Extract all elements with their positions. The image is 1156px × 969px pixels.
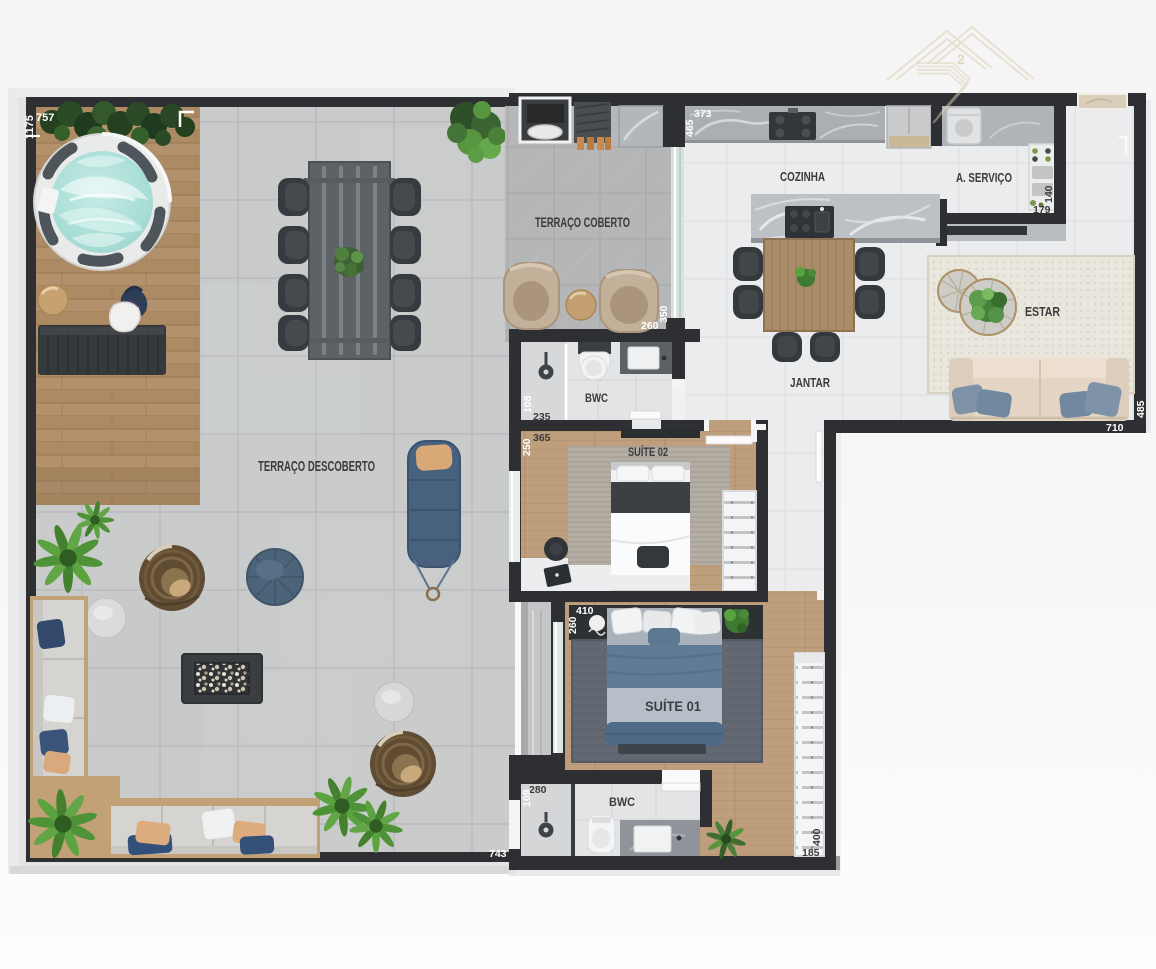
svg-text:TERRAÇO DESCOBERTO: TERRAÇO DESCOBERTO — [258, 458, 375, 475]
svg-text:260: 260 — [567, 616, 579, 634]
svg-text:485: 485 — [1135, 400, 1147, 418]
svg-text:SUÍTE 02: SUÍTE 02 — [628, 444, 668, 459]
svg-text:743: 743 — [489, 848, 507, 860]
svg-text:BWC: BWC — [609, 797, 635, 809]
svg-text:TERRAÇO COBERTO: TERRAÇO COBERTO — [535, 215, 630, 230]
svg-text:260: 260 — [641, 320, 659, 332]
svg-text:BWC: BWC — [585, 393, 608, 405]
svg-text:350: 350 — [658, 305, 670, 323]
svg-text:757: 757 — [36, 112, 54, 124]
svg-text:140: 140 — [1043, 185, 1055, 203]
svg-text:COZINHA: COZINHA — [780, 169, 825, 184]
svg-text:185: 185 — [802, 847, 820, 859]
svg-text:465: 465 — [684, 119, 696, 137]
svg-text:410: 410 — [576, 605, 594, 617]
svg-text:179: 179 — [1033, 204, 1051, 216]
svg-text:250: 250 — [521, 438, 533, 456]
svg-text:365: 365 — [533, 432, 551, 444]
svg-text:373: 373 — [694, 108, 712, 120]
svg-text:A. SERVIÇO: A. SERVIÇO — [956, 170, 1012, 185]
svg-text:JANTAR: JANTAR — [790, 376, 830, 390]
svg-text:109: 109 — [521, 789, 533, 807]
svg-text:SUÍTE 01: SUÍTE 01 — [645, 699, 701, 714]
svg-text:710: 710 — [1106, 422, 1124, 434]
svg-text:400: 400 — [811, 828, 823, 846]
svg-text:2: 2 — [957, 51, 965, 67]
svg-text:ESTAR: ESTAR — [1025, 305, 1060, 319]
